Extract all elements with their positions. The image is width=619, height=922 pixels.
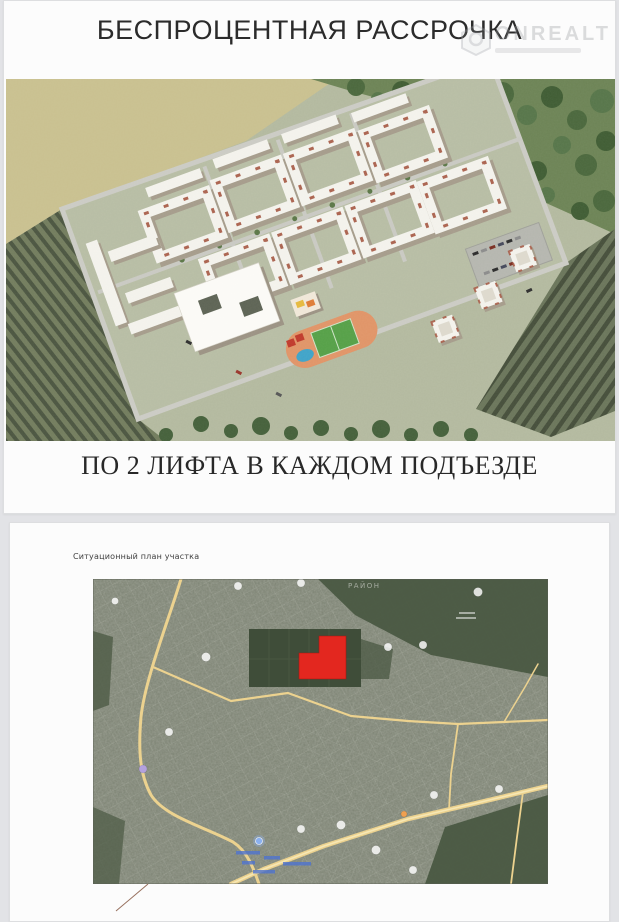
site-plan-card: Ситуационный план участка	[9, 522, 610, 922]
site-plan-label: Ситуационный план участка	[73, 552, 199, 561]
headline-elevators: ПО 2 ЛИФТА В КАЖДОМ ПОДЪЕЗДЕ	[4, 451, 615, 481]
watermark-subtext-bar	[495, 48, 581, 53]
promo-card: БЕСПРОЦЕНТНАЯ РАССРОЧКА ONREALT	[3, 0, 616, 514]
satellite-map: РАЙОН	[93, 579, 548, 884]
render-texture	[6, 79, 615, 441]
headline-installment: БЕСПРОЦЕНТНАЯ РАССРОЧКА	[4, 15, 615, 46]
map-district-label: РАЙОН	[348, 581, 381, 590]
complex-aerial-render	[6, 79, 615, 441]
